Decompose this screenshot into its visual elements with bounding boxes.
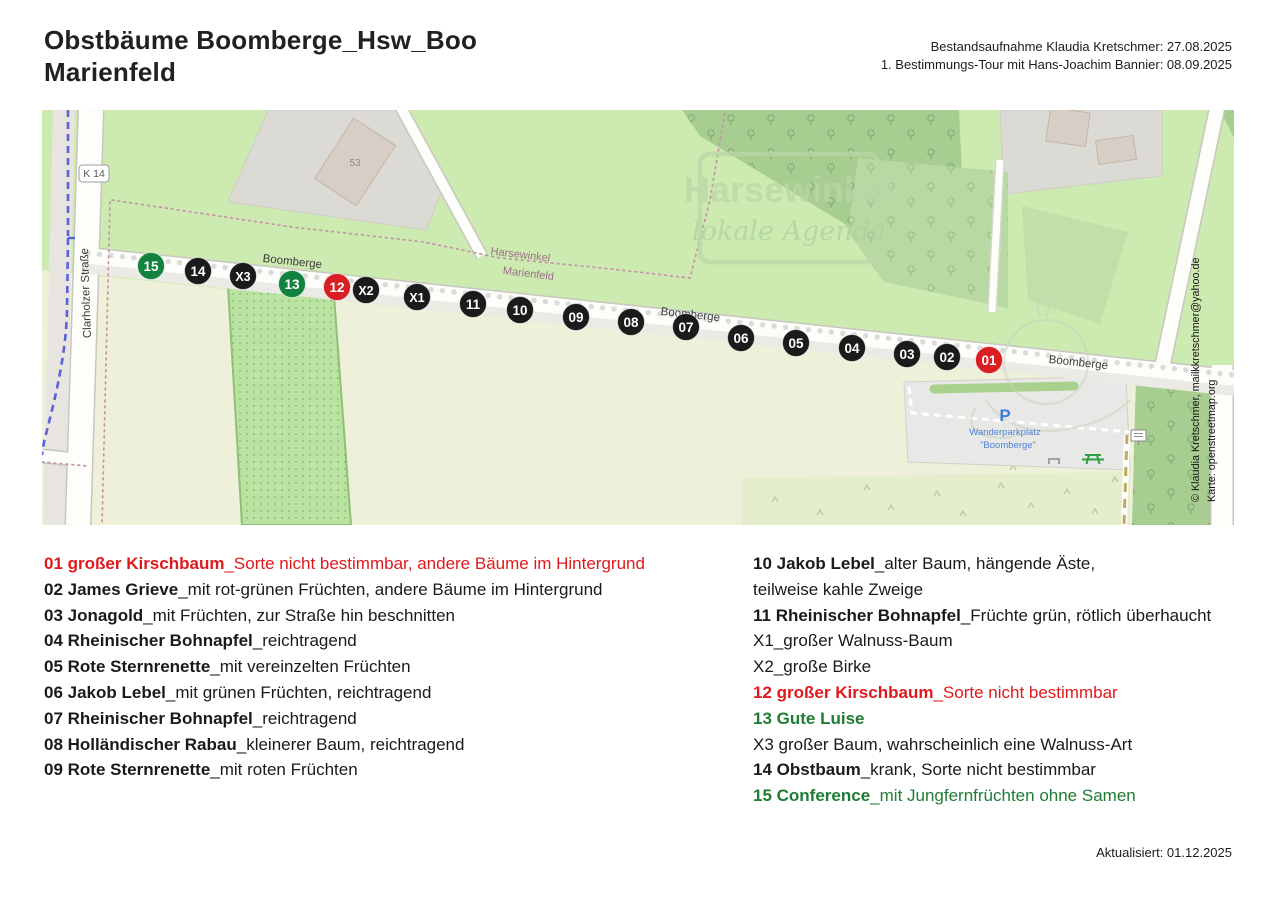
legend-entry-description: _mit Früchten, zur Straße hin beschnitte… bbox=[143, 606, 455, 625]
legend-entry-description: _alter Baum, hängende Äste, bbox=[875, 554, 1095, 573]
title-line-1: Obstbäume Boomberge_Hsw_Boo bbox=[44, 24, 477, 56]
legend-entry-description: _mit roten Früchten bbox=[210, 760, 357, 779]
legend-entry: 02 James Grieve_mit rot-grünen Früchten,… bbox=[44, 577, 645, 603]
svg-text:Wanderparkplatz: Wanderparkplatz bbox=[969, 427, 1041, 438]
legend-entry-description: _mit vereinzelten Früchten bbox=[210, 657, 410, 676]
legend-entry-name: 05 Rote Sternrenette bbox=[44, 657, 210, 676]
legend-entry-name: 02 James Grieve bbox=[44, 580, 178, 599]
watermark-line-1: Harsewinkel bbox=[684, 169, 894, 210]
map-marker-label: 05 bbox=[788, 336, 804, 351]
legend-entry: teilweise kahle Zweige bbox=[753, 577, 1211, 603]
road-shield-k14: K 14 bbox=[79, 165, 109, 182]
map-marker-label: 10 bbox=[512, 303, 527, 318]
legend-entry-name: 06 Jakob Lebel bbox=[44, 683, 166, 702]
legend-entry-description: _mit Jungfernfrüchten ohne Samen bbox=[870, 786, 1136, 805]
map-marker-label: 06 bbox=[733, 331, 749, 346]
legend-entry-description: teilweise kahle Zweige bbox=[753, 580, 923, 599]
map-marker-label: 15 bbox=[143, 259, 159, 274]
legend-entry: 08 Holländischer Rabau_kleinerer Baum, r… bbox=[44, 732, 645, 758]
map-marker-label: 08 bbox=[623, 315, 639, 330]
legend-column-left: 01 großer Kirschbaum_Sorte nicht bestimm… bbox=[44, 551, 645, 783]
credit-author: © Klaudia Kretschmer, mailkkretschmer@ya… bbox=[1190, 257, 1202, 502]
map-marker-label: 03 bbox=[899, 347, 915, 362]
map-marker-label: X3 bbox=[235, 270, 250, 284]
legend-entry-description: _mit grünen Früchten, reichtragend bbox=[166, 683, 432, 702]
legend-entry: X3 großer Baum, wahrscheinlich eine Waln… bbox=[753, 732, 1211, 758]
map-marker-label: 02 bbox=[939, 350, 954, 365]
legend-entry-description: _reichtragend bbox=[253, 631, 357, 650]
survey-line-2: 1. Bestimmungs-Tour mit Hans-Joachim Ban… bbox=[881, 56, 1232, 74]
legend-entry-name: 07 Rheinischer Bohnapfel bbox=[44, 709, 253, 728]
legend-entry: 04 Rheinischer Bohnapfel_reichtragend bbox=[44, 628, 645, 654]
legend-entry: 10 Jakob Lebel_alter Baum, hängende Äste… bbox=[753, 551, 1211, 577]
parking-p-icon: P bbox=[999, 406, 1010, 425]
legend-entry: 13 Gute Luise bbox=[753, 706, 1211, 732]
map-marker-label: 09 bbox=[568, 310, 583, 325]
updated-date: Aktualisiert: 01.12.2025 bbox=[1096, 845, 1232, 860]
legend-entry-description: _Früchte grün, rötlich überhaucht bbox=[961, 606, 1211, 625]
legend-entry-name: 08 Holländischer Rabau bbox=[44, 735, 237, 754]
legend-entry: 03 Jonagold_mit Früchten, zur Straße hin… bbox=[44, 603, 645, 629]
legend-entry-name: 03 Jonagold bbox=[44, 606, 143, 625]
survey-info: Bestandsaufnahme Klaudia Kretschmer: 27.… bbox=[881, 38, 1232, 73]
legend-entry-description: X2_große Birke bbox=[753, 657, 871, 676]
map-marker-label: X1 bbox=[409, 291, 424, 305]
legend-entry: 15 Conference_mit Jungfernfrüchten ohne … bbox=[753, 783, 1211, 809]
map-marker-label: 14 bbox=[190, 264, 206, 279]
legend-entry: 14 Obstbaum_krank, Sorte nicht bestimmba… bbox=[753, 757, 1211, 783]
legend-entry-name: 09 Rote Sternrenette bbox=[44, 760, 210, 779]
title-line-2: Marienfeld bbox=[44, 56, 477, 88]
legend-entry-name: 11 Rheinischer Bohnapfel bbox=[753, 606, 961, 625]
legend-column-right: 10 Jakob Lebel_alter Baum, hängende Äste… bbox=[753, 551, 1211, 809]
legend-entry-name: 12 großer Kirschbaum bbox=[753, 683, 933, 702]
map-marker-label: 04 bbox=[844, 341, 860, 356]
legend-entry-name: 13 Gute Luise bbox=[753, 709, 864, 728]
map-svg: Harsewinkel lokale Agenda K 14 Clarholze… bbox=[42, 110, 1234, 525]
watermark: Harsewinkel lokale Agenda bbox=[684, 154, 894, 262]
legend-entry: 01 großer Kirschbaum_Sorte nicht bestimm… bbox=[44, 551, 645, 577]
legend-entry: 05 Rote Sternrenette_mit vereinzelten Fr… bbox=[44, 654, 645, 680]
legend-entry-name: 15 Conference bbox=[753, 786, 870, 805]
map-image: Harsewinkel lokale Agenda K 14 Clarholze… bbox=[42, 110, 1234, 525]
survey-line-1: Bestandsaufnahme Klaudia Kretschmer: 27.… bbox=[881, 38, 1232, 56]
legend-entry-description: _Sorte nicht bestimmbar bbox=[933, 683, 1117, 702]
map-marker-label: X2 bbox=[358, 284, 373, 298]
legend-entry-description: _kleinerer Baum, reichtragend bbox=[237, 735, 465, 754]
legend-entry: 07 Rheinischer Bohnapfel_reichtragend bbox=[44, 706, 645, 732]
map-marker-label: 11 bbox=[466, 297, 481, 312]
legend-entry-description: _mit rot-grünen Früchten, andere Bäume i… bbox=[178, 580, 602, 599]
legend-entry-name: 04 Rheinischer Bohnapfel bbox=[44, 631, 253, 650]
legend-entry: X1_großer Walnuss-Baum bbox=[753, 628, 1211, 654]
legend-entry-description: _reichtragend bbox=[253, 709, 357, 728]
legend-entry-description: X1_großer Walnuss-Baum bbox=[753, 631, 953, 650]
map-marker-label: 01 bbox=[981, 353, 997, 368]
watermark-line-2: lokale Agenda bbox=[692, 216, 886, 247]
svg-text:K 14: K 14 bbox=[83, 168, 105, 180]
legend-entry: X2_große Birke bbox=[753, 654, 1211, 680]
legend-entry-description: _Sorte nicht bestimmbar, andere Bäume im… bbox=[224, 554, 644, 573]
page-title: Obstbäume Boomberge_Hsw_Boo Marienfeld bbox=[44, 24, 477, 88]
legend-entry: 12 großer Kirschbaum_Sorte nicht bestimm… bbox=[753, 680, 1211, 706]
legend-entry-description: X3 großer Baum, wahrscheinlich eine Waln… bbox=[753, 735, 1132, 754]
svg-text:"Boomberge": "Boomberge" bbox=[980, 440, 1036, 451]
credit-map-source: Karte: openstreetmap.org bbox=[1206, 380, 1218, 502]
legend-entry: 06 Jakob Lebel_mit grünen Früchten, reic… bbox=[44, 680, 645, 706]
legend-entry-description: _krank, Sorte nicht bestimmbar bbox=[861, 760, 1096, 779]
footpath-dashed bbox=[1124, 435, 1127, 525]
legend-entry-name: 14 Obstbaum bbox=[753, 760, 861, 779]
legend-entry: 09 Rote Sternrenette_mit roten Früchten bbox=[44, 757, 645, 783]
map-orchard bbox=[228, 286, 351, 525]
building-number-label: 53 bbox=[349, 158, 361, 169]
map-marker-label: 12 bbox=[329, 280, 344, 295]
legend-entry-name: 10 Jakob Lebel bbox=[753, 554, 875, 573]
map-marker-label: 13 bbox=[284, 277, 300, 292]
legend-entry-name: 01 großer Kirschbaum bbox=[44, 554, 224, 573]
map-marker-label: 07 bbox=[678, 320, 693, 335]
legend-entry: 11 Rheinischer Bohnapfel_Früchte grün, r… bbox=[753, 603, 1211, 629]
